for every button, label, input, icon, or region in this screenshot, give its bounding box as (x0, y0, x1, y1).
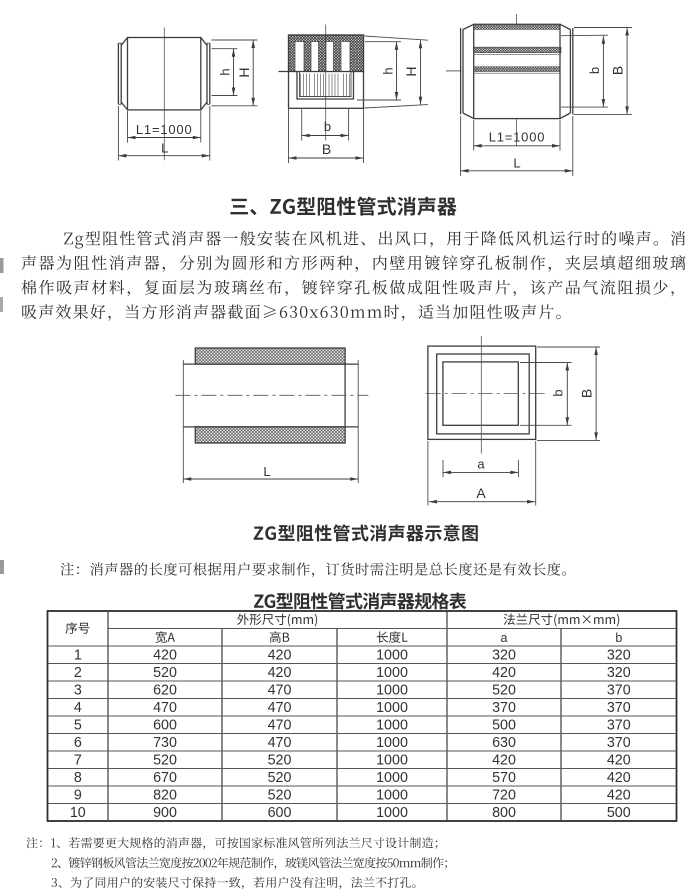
svg-text:10: 10 (70, 805, 86, 821)
svg-text:b: b (587, 67, 602, 74)
svg-text:520: 520 (268, 787, 292, 803)
svg-text:500: 500 (607, 805, 631, 821)
svg-text:B: B (579, 389, 595, 398)
svg-text:1000: 1000 (376, 787, 408, 803)
svg-text:1000: 1000 (376, 735, 408, 751)
svg-text:4: 4 (74, 700, 82, 716)
svg-text:370: 370 (492, 700, 516, 716)
svg-text:1000: 1000 (376, 647, 408, 663)
svg-text:3: 3 (74, 682, 82, 698)
svg-text:820: 820 (153, 787, 177, 803)
svg-text:b: b (324, 119, 331, 134)
svg-text:470: 470 (153, 700, 177, 716)
svg-text:570: 570 (492, 770, 516, 786)
svg-text:370: 370 (607, 700, 631, 716)
svg-text:470: 470 (268, 717, 292, 733)
svg-text:320: 320 (492, 647, 516, 663)
svg-text:520: 520 (492, 682, 516, 698)
svg-text:520: 520 (153, 665, 177, 681)
svg-text:320: 320 (607, 647, 631, 663)
svg-text:520: 520 (153, 752, 177, 768)
svg-text:h: h (381, 67, 396, 74)
svg-text:420: 420 (492, 665, 516, 681)
svg-text:420: 420 (607, 770, 631, 786)
svg-text:9: 9 (74, 787, 82, 803)
svg-text:470: 470 (268, 682, 292, 698)
svg-text:8: 8 (74, 770, 82, 786)
svg-text:370: 370 (607, 682, 631, 698)
svg-text:470: 470 (268, 700, 292, 716)
svg-text:b: b (551, 389, 566, 396)
svg-text:a: a (501, 631, 508, 645)
svg-text:500: 500 (492, 717, 516, 733)
svg-text:320: 320 (607, 665, 631, 681)
svg-text:5: 5 (74, 717, 82, 733)
svg-text:800: 800 (492, 805, 516, 821)
svg-text:L: L (513, 155, 520, 170)
svg-text:1000: 1000 (376, 770, 408, 786)
svg-text:1: 1 (74, 647, 82, 663)
svg-text:L: L (161, 140, 168, 155)
svg-text:H: H (403, 66, 419, 76)
svg-text:420: 420 (268, 665, 292, 681)
svg-text:A: A (476, 485, 486, 501)
svg-text:520: 520 (268, 770, 292, 786)
svg-text:1000: 1000 (376, 665, 408, 681)
svg-text:7: 7 (74, 752, 82, 768)
svg-text:420: 420 (268, 647, 292, 663)
svg-text:720: 720 (492, 787, 516, 803)
svg-text:B: B (322, 141, 331, 157)
svg-text:420: 420 (607, 752, 631, 768)
svg-text:620: 620 (153, 682, 177, 698)
svg-text:h: h (218, 68, 233, 75)
svg-text:1000: 1000 (376, 752, 408, 768)
svg-text:1000: 1000 (376, 717, 408, 733)
svg-text:1000: 1000 (376, 805, 408, 821)
svg-text:H: H (236, 67, 252, 77)
svg-text:L1=1000: L1=1000 (136, 122, 193, 137)
svg-text:600: 600 (153, 717, 177, 733)
svg-text:a: a (477, 457, 485, 472)
svg-text:600: 600 (268, 805, 292, 821)
svg-text:2: 2 (74, 665, 82, 681)
svg-text:B: B (610, 66, 626, 75)
svg-text:1000: 1000 (376, 700, 408, 716)
svg-text:670: 670 (153, 770, 177, 786)
svg-text:L1=1000: L1=1000 (489, 129, 546, 144)
svg-text:520: 520 (268, 752, 292, 768)
svg-text:L: L (263, 464, 270, 479)
svg-text:370: 370 (607, 717, 631, 733)
svg-text:6: 6 (74, 735, 82, 751)
svg-text:730: 730 (153, 735, 177, 751)
svg-text:470: 470 (268, 735, 292, 751)
svg-text:630: 630 (492, 735, 516, 751)
svg-text:420: 420 (492, 752, 516, 768)
svg-text:1000: 1000 (376, 682, 408, 698)
svg-text:420: 420 (153, 647, 177, 663)
svg-text:900: 900 (153, 805, 177, 821)
svg-text:370: 370 (607, 735, 631, 751)
svg-text:420: 420 (607, 787, 631, 803)
svg-text:b: b (615, 631, 622, 645)
